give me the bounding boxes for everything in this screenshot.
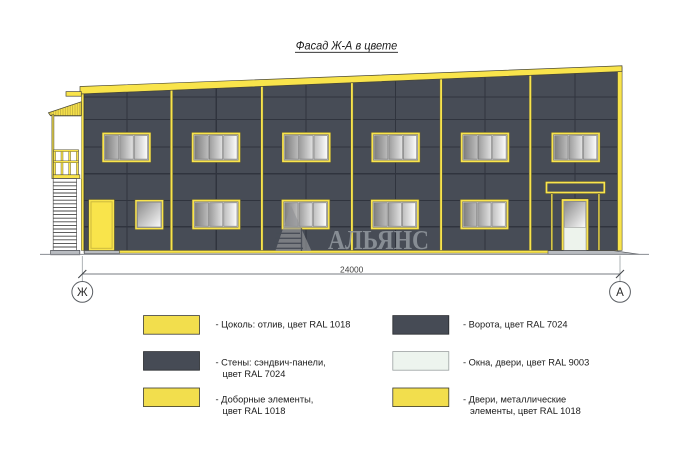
- svg-text:- Цоколь: отлив, цвет RAL 1018: - Цоколь: отлив, цвет RAL 1018: [216, 320, 351, 330]
- svg-text:24000: 24000: [340, 264, 364, 274]
- svg-text:цвет RAL 1018: цвет RAL 1018: [223, 406, 286, 416]
- svg-text:- Ворота, цвет RAL 7024: - Ворота, цвет RAL 7024: [463, 320, 568, 330]
- svg-text:- Двери, металлические: - Двери, металлические: [463, 395, 566, 405]
- svg-text:АЛЬЯНС: АЛЬЯНС: [328, 224, 429, 255]
- svg-text:- Доборные элементы,: - Доборные элементы,: [216, 395, 314, 405]
- svg-text:- Стены: сэндвич-панели,: - Стены: сэндвич-панели,: [216, 357, 326, 367]
- svg-text:- Окна, двери, цвет RAL 9003: - Окна, двери, цвет RAL 9003: [463, 357, 589, 367]
- svg-text:А: А: [616, 287, 624, 299]
- svg-text:Ж: Ж: [77, 287, 88, 299]
- svg-text:цвет RAL 7024: цвет RAL 7024: [223, 369, 286, 379]
- svg-text:элементы, цвет RAL 1018: элементы, цвет RAL 1018: [470, 406, 581, 416]
- svg-text:Фасад Ж-А в цвете: Фасад Ж-А в цвете: [296, 39, 398, 53]
